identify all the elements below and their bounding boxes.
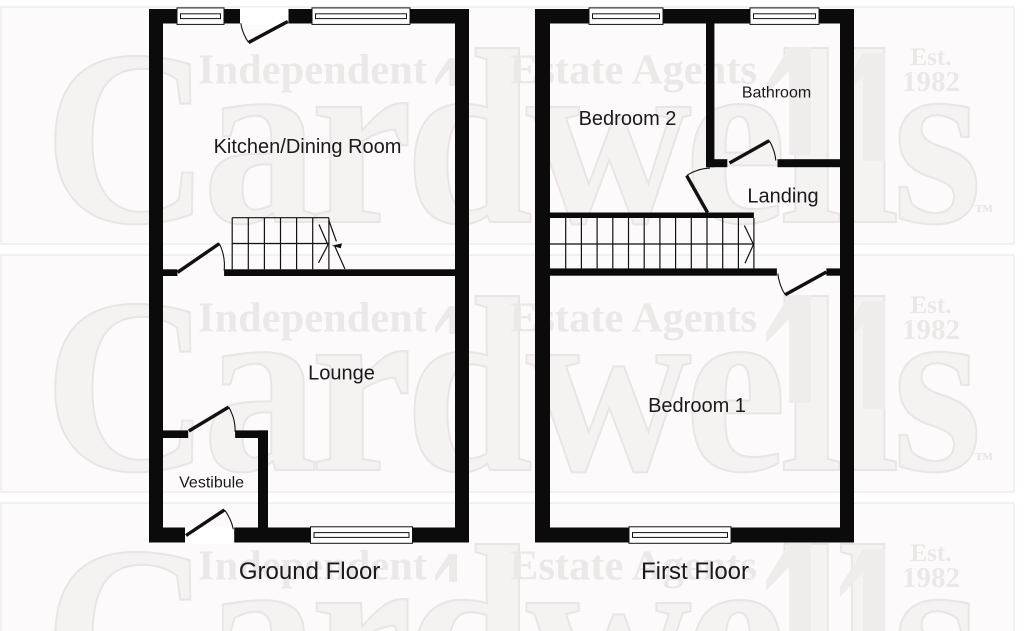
svg-text:Lounge: Lounge xyxy=(308,363,375,385)
svg-text:Bathroom: Bathroom xyxy=(742,85,811,102)
svg-text:Vestibule: Vestibule xyxy=(179,474,244,491)
svg-text:Ground Floor: Ground Floor xyxy=(239,558,380,585)
svg-text:Bedroom 1: Bedroom 1 xyxy=(648,395,746,417)
svg-text:Kitchen/Dining Room: Kitchen/Dining Room xyxy=(214,136,402,158)
svg-text:Bedroom 2: Bedroom 2 xyxy=(579,108,677,130)
svg-text:Landing: Landing xyxy=(747,186,818,208)
svg-text:First Floor: First Floor xyxy=(641,558,749,585)
